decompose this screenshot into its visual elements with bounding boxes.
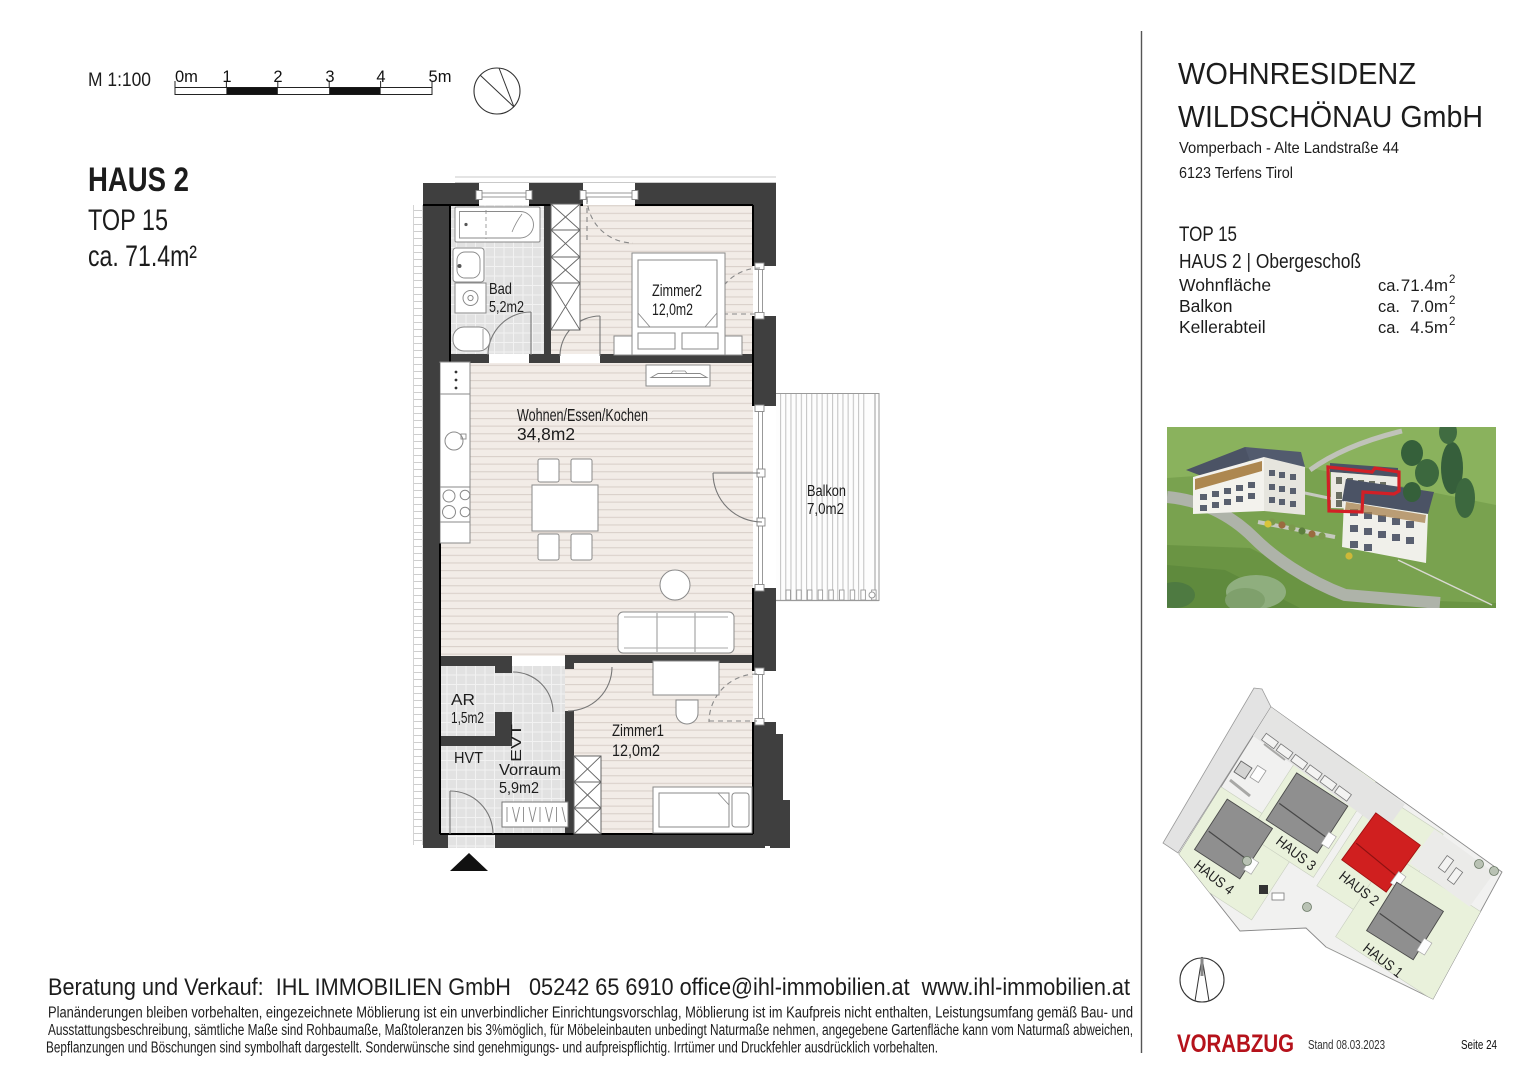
svg-text:Ausstattungsbeschreibung, sämt: Ausstattungsbeschreibung, sämtliche Maße… — [48, 1022, 1133, 1039]
svg-text:ca.: ca. — [1378, 277, 1400, 295]
svg-text:34,8m2: 34,8m2 — [517, 424, 575, 444]
svg-text:HVT: HVT — [454, 750, 483, 767]
svg-text:0m: 0m — [175, 68, 198, 86]
svg-text:7.0m: 7.0m — [1410, 297, 1448, 316]
svg-text:7,0m2: 7,0m2 — [807, 501, 844, 518]
svg-text:5,9m2: 5,9m2 — [499, 780, 539, 797]
svg-text:4: 4 — [376, 68, 385, 86]
svg-text:ca.: ca. — [1378, 298, 1400, 316]
svg-text:4.5m: 4.5m — [1410, 318, 1448, 337]
svg-text:71.4m: 71.4m — [1401, 276, 1448, 295]
svg-text:Stand 08.03.2023: Stand 08.03.2023 — [1308, 1037, 1385, 1052]
svg-text:EVT: EVT — [508, 724, 525, 762]
svg-text:Beratung und Verkauf: IHL IMM: Beratung und Verkauf: IHL IMMOBILIEN Gmb… — [48, 974, 1130, 1001]
svg-text:WOHNRESIDENZ: WOHNRESIDENZ — [1178, 57, 1416, 91]
svg-text:6123 Terfens Tirol: 6123 Terfens Tirol — [1179, 165, 1293, 182]
svg-text:Balkon: Balkon — [807, 483, 846, 500]
svg-text:Zimmer1: Zimmer1 — [612, 721, 664, 740]
svg-text:Balkon: Balkon — [1179, 296, 1233, 316]
svg-text:12,0m2: 12,0m2 — [612, 741, 660, 760]
svg-text:ca. 71.4m²: ca. 71.4m² — [88, 240, 197, 273]
svg-text:Vomperbach - Alte Landstraße 4: Vomperbach - Alte Landstraße 44 — [1179, 140, 1399, 157]
svg-text:HAUS 2: HAUS 2 — [88, 161, 189, 199]
svg-text:WILDSCHÖNAU GmbH: WILDSCHÖNAU GmbH — [1178, 100, 1483, 134]
svg-text:TOP 15: TOP 15 — [1179, 223, 1237, 246]
svg-text:HAUS 2 | Obergeschoß: HAUS 2 | Obergeschoß — [1179, 251, 1361, 273]
svg-text:ca.: ca. — [1378, 319, 1400, 337]
svg-text:Kellerabteil: Kellerabteil — [1179, 317, 1266, 337]
svg-text:Wohnen/Essen/Kochen: Wohnen/Essen/Kochen — [517, 405, 648, 425]
svg-text:1,5m2: 1,5m2 — [451, 710, 484, 727]
svg-text:M 1:100: M 1:100 — [88, 70, 151, 91]
svg-text:5m: 5m — [429, 68, 452, 86]
svg-text:Bepflanzungen und Böschungen s: Bepflanzungen und Böschungen sind symbol… — [46, 1040, 938, 1057]
svg-text:Wohnfläche: Wohnfläche — [1179, 275, 1271, 295]
svg-text:2: 2 — [273, 68, 282, 86]
svg-text:VORABZUG: VORABZUG — [1177, 1030, 1294, 1058]
svg-text:Vorraum: Vorraum — [499, 762, 561, 779]
svg-text:2: 2 — [1449, 274, 1455, 286]
svg-text:AR: AR — [451, 692, 475, 709]
svg-text:Bad: Bad — [489, 281, 512, 298]
svg-text:2: 2 — [1449, 295, 1455, 307]
svg-text:2: 2 — [1449, 316, 1455, 328]
svg-text:1: 1 — [222, 68, 231, 86]
svg-text:3: 3 — [325, 68, 334, 86]
svg-text:Planänderungen bleiben vorbeha: Planänderungen bleiben vorbehalten, eing… — [48, 1005, 1133, 1022]
svg-text:12,0m2: 12,0m2 — [652, 300, 693, 319]
svg-text:5,2m2: 5,2m2 — [489, 299, 524, 316]
svg-text:TOP 15: TOP 15 — [88, 204, 168, 237]
svg-text:Seite 24: Seite 24 — [1461, 1037, 1497, 1052]
svg-text:Zimmer2: Zimmer2 — [652, 281, 702, 300]
